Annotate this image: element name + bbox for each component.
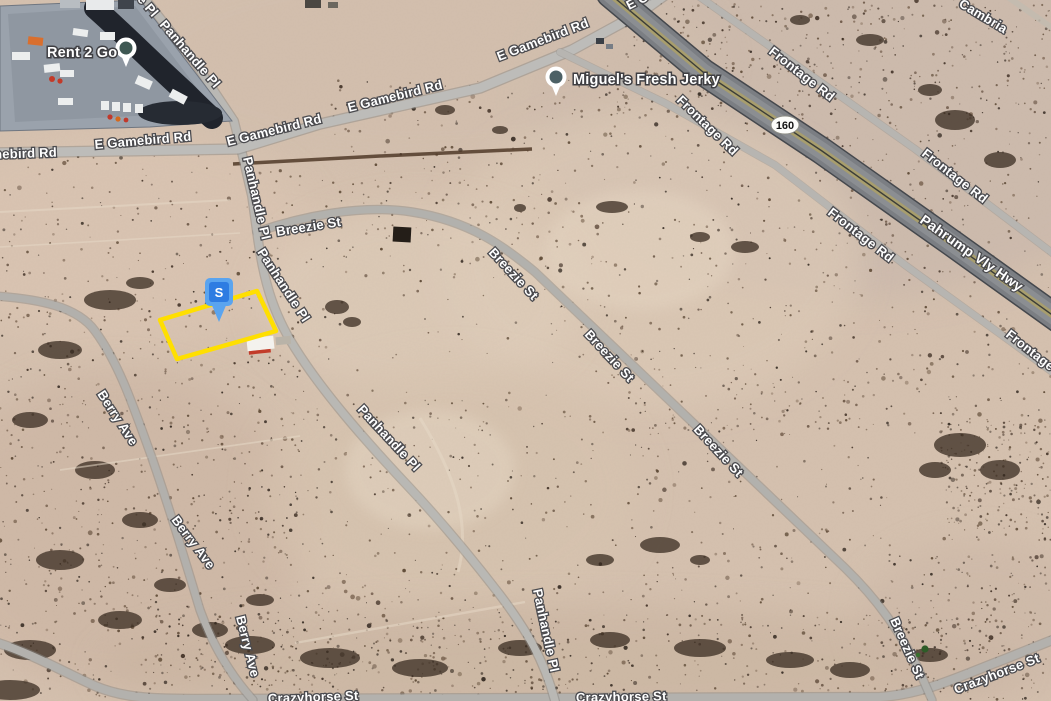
road-label: Crazyhorse St	[576, 688, 667, 701]
satellite-map[interactable]: E Gamebird RdE Gamebird RdE Gamebird RdE…	[0, 0, 1051, 701]
route-shield-text: 160	[776, 120, 794, 132]
route-shield-160: 160	[771, 116, 799, 134]
road-label: Crazyhorse St	[268, 688, 360, 701]
parcel-marker-letter: S	[215, 285, 224, 300]
poi-label[interactable]: Rent 2 Go	[47, 45, 117, 61]
dark-structure	[393, 227, 412, 243]
green-tree	[921, 645, 928, 652]
poi-label[interactable]: Miguel's Fresh Jerky	[573, 72, 720, 88]
